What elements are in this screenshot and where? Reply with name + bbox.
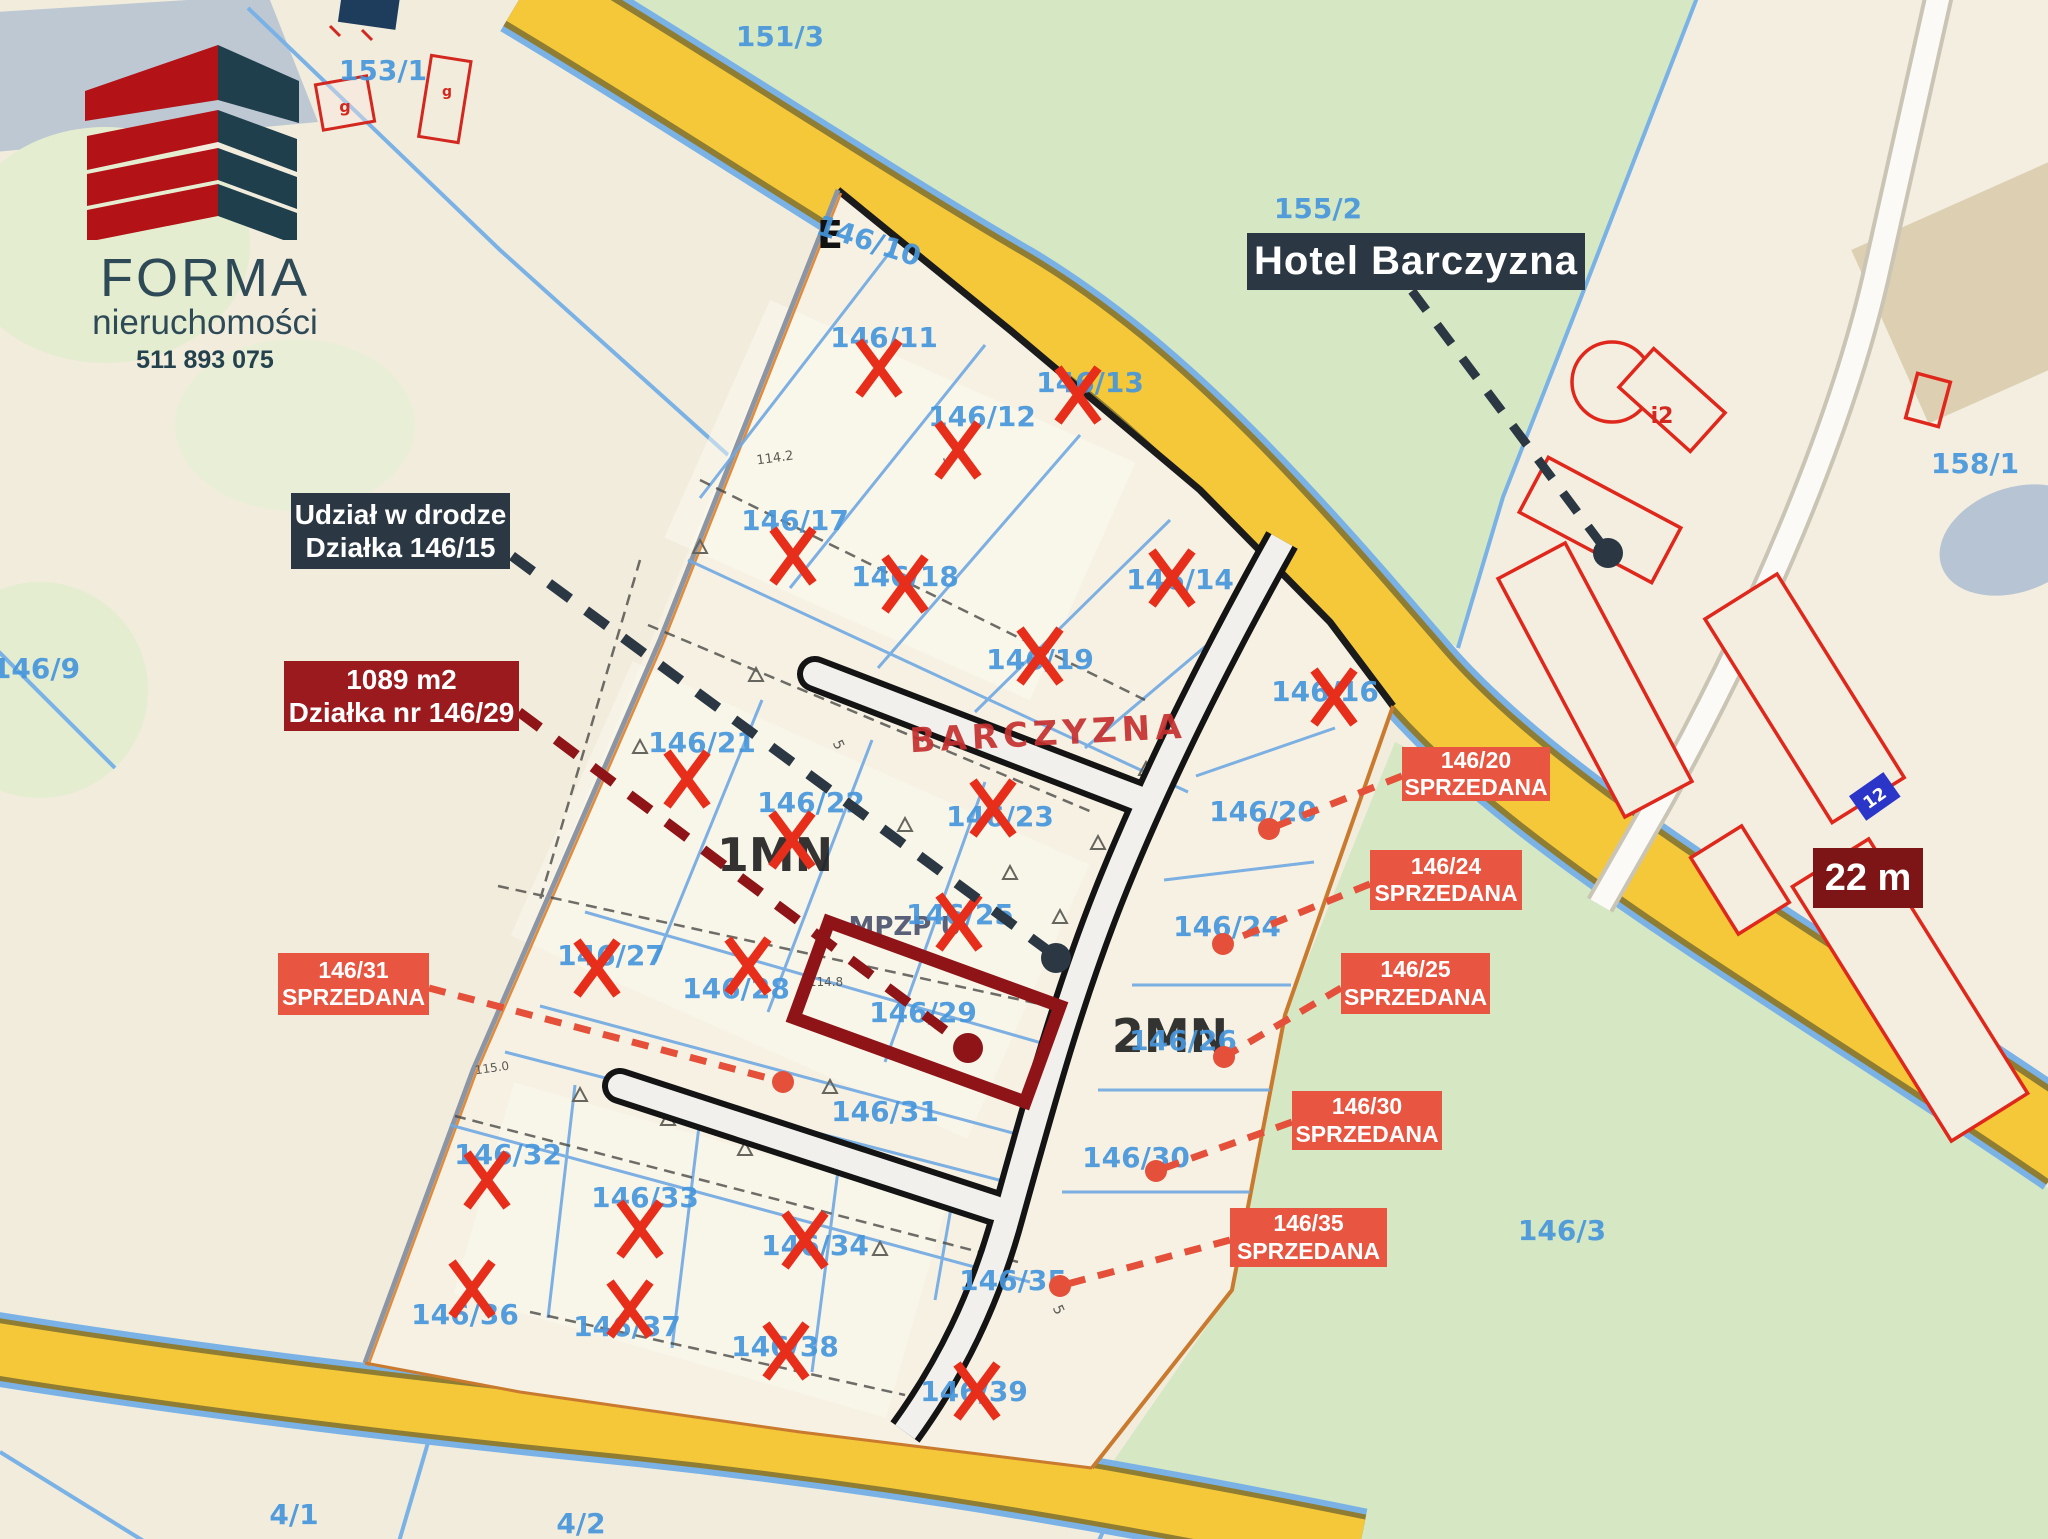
company-name: FORMA bbox=[40, 251, 370, 305]
sold-plot-number: 146/30 bbox=[1332, 1093, 1402, 1120]
hotel-callout: Hotel Barczyzna bbox=[1247, 233, 1585, 290]
company-logo: FORMA nieruchomości 511 893 075 bbox=[40, 30, 370, 375]
real-estate-map-flyer: i2 12 g g 1MN 2MN BARCZYZNA MPZP U E 114… bbox=[0, 0, 2048, 1539]
sold-status: SPRZEDANA bbox=[1374, 880, 1517, 907]
parcel-number-146-17: 146/17 bbox=[741, 504, 849, 537]
sold-dot-146-24 bbox=[1212, 933, 1234, 955]
parcel-number-158-1: 158/1 bbox=[1931, 447, 2019, 480]
sold-status: SPRZEDANA bbox=[1344, 984, 1487, 1011]
sold-callout-146-25: 146/25SPRZEDANA bbox=[1341, 953, 1490, 1014]
road-share-line2: Działka 146/15 bbox=[306, 531, 496, 564]
frontage-text: 22 m bbox=[1825, 856, 1912, 901]
frontage-callout: 22 m bbox=[1813, 848, 1923, 908]
sold-status: SPRZEDANA bbox=[1295, 1121, 1438, 1148]
parcel-number-146-31: 146/31 bbox=[831, 1095, 939, 1128]
parcel-number-151-3: 151/3 bbox=[736, 20, 824, 53]
company-subtitle: nieruchomości bbox=[40, 305, 370, 342]
parcel-number-146-33: 146/33 bbox=[591, 1181, 699, 1214]
sold-callout-146-24: 146/24SPRZEDANA bbox=[1370, 850, 1522, 910]
sold-callout-146-30: 146/30SPRZEDANA bbox=[1292, 1091, 1442, 1150]
sold-callout-146-35: 146/35SPRZEDANA bbox=[1230, 1208, 1387, 1267]
parcel-number-4-1: 4/1 bbox=[269, 1498, 318, 1531]
sold-plot-number: 146/24 bbox=[1411, 853, 1481, 880]
zone-label-1mn: 1MN bbox=[717, 828, 833, 882]
sold-callout-146-31: 146/31SPRZEDANA bbox=[278, 953, 429, 1015]
logo-building-icon bbox=[40, 30, 370, 240]
offer-dot bbox=[953, 1033, 983, 1063]
sold-dot-146-25 bbox=[1213, 1046, 1235, 1068]
offer-area: 1089 m2 bbox=[346, 663, 457, 696]
sold-status: SPRZEDANA bbox=[1404, 774, 1547, 801]
hotel-dot bbox=[1593, 538, 1623, 568]
parcel-number-146-9: 146/9 bbox=[0, 652, 80, 685]
building-label-i2: i2 bbox=[1651, 404, 1674, 429]
sold-status: SPRZEDANA bbox=[1237, 1238, 1380, 1265]
road-share-dot bbox=[1041, 943, 1071, 973]
parcel-number-4-2: 4/2 bbox=[556, 1507, 605, 1539]
road-share-callout: Udział w drodze Działka 146/15 bbox=[291, 493, 510, 569]
sold-dot-146-31 bbox=[772, 1071, 794, 1093]
parcel-number-146-11: 146/11 bbox=[830, 321, 938, 354]
sold-dot-146-20 bbox=[1258, 818, 1280, 840]
sold-dot-146-35 bbox=[1049, 1275, 1071, 1297]
offer-plot-number: Działka nr 146/29 bbox=[289, 696, 515, 729]
road-share-line1: Udział w drodze bbox=[295, 498, 507, 531]
sold-dot-146-30 bbox=[1145, 1160, 1167, 1182]
parcel-number-155-2: 155/2 bbox=[1274, 192, 1362, 225]
sold-callout-146-20: 146/20SPRZEDANA bbox=[1402, 747, 1550, 801]
offer-callout: 1089 m2 Działka nr 146/29 bbox=[284, 661, 519, 731]
hotel-callout-text: Hotel Barczyzna bbox=[1254, 238, 1578, 285]
sold-plot-number: 146/25 bbox=[1380, 956, 1450, 983]
sold-plot-number: 146/35 bbox=[1273, 1210, 1343, 1237]
sold-status: SPRZEDANA bbox=[282, 984, 425, 1011]
parcel-number-146-30: 146/30 bbox=[1082, 1141, 1190, 1174]
svg-text:g: g bbox=[442, 84, 452, 100]
company-phone: 511 893 075 bbox=[40, 346, 370, 375]
parcel-number-146-3: 146/3 bbox=[1518, 1214, 1606, 1247]
parcel-number-146-29: 146/29 bbox=[869, 996, 977, 1029]
sold-plot-number: 146/31 bbox=[318, 957, 388, 984]
sold-plot-number: 146/20 bbox=[1441, 747, 1511, 774]
